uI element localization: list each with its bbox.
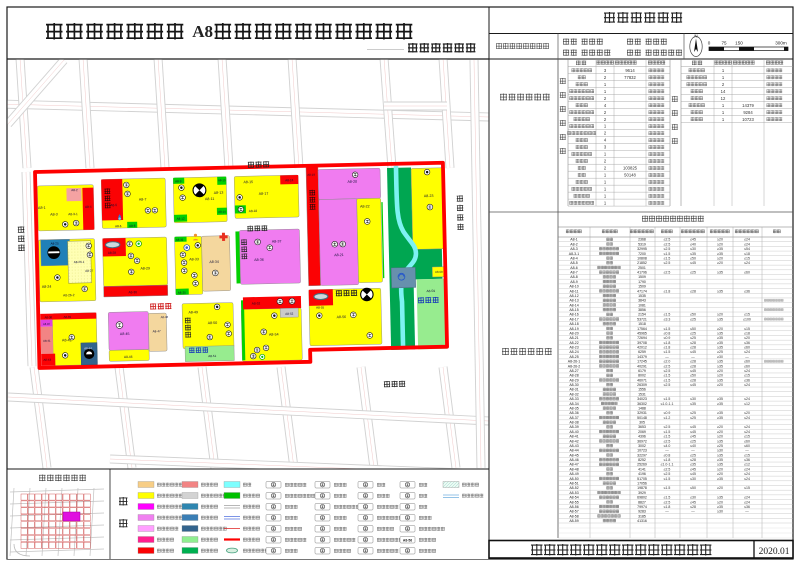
svg-text:A8-13: A8-13 xyxy=(214,191,224,195)
svg-text:A8-26-1: A8-26-1 xyxy=(568,360,581,364)
svg-text:103825: 103825 xyxy=(623,166,638,171)
svg-text:150: 150 xyxy=(735,41,743,46)
svg-text:≤1.8: ≤1.8 xyxy=(664,289,671,293)
svg-text:≥20: ≥20 xyxy=(717,313,723,317)
svg-text:A8-56: A8-56 xyxy=(569,505,578,509)
svg-text:A8-45: A8-45 xyxy=(120,332,130,336)
svg-text:≤1.5: ≤1.5 xyxy=(664,496,671,500)
svg-text:≤45: ≤45 xyxy=(690,467,696,471)
svg-text:39708: 39708 xyxy=(637,341,647,345)
svg-text:≤24: ≤24 xyxy=(744,467,750,471)
svg-text:≤45: ≤45 xyxy=(690,425,696,429)
svg-text:A8-50: A8-50 xyxy=(208,321,218,325)
svg-text:A8-47: A8-47 xyxy=(153,329,161,333)
svg-text:≥35: ≥35 xyxy=(717,247,723,251)
svg-text:4196: 4196 xyxy=(638,472,646,476)
svg-text:A8-7: A8-7 xyxy=(570,271,577,275)
svg-text:≤24: ≤24 xyxy=(744,397,750,401)
svg-text:≤36: ≤36 xyxy=(744,289,750,293)
svg-text:17056: 17056 xyxy=(637,482,647,486)
svg-text:A8-21: A8-21 xyxy=(334,253,344,257)
svg-text:1531: 1531 xyxy=(638,392,646,396)
svg-text:≤1.0-1.1: ≤1.0-1.1 xyxy=(661,402,674,406)
svg-text:A8-52: A8-52 xyxy=(569,486,578,490)
svg-text:≤15: ≤15 xyxy=(744,374,750,378)
svg-text:≤25: ≤25 xyxy=(690,317,696,321)
svg-text:A8-12: A8-12 xyxy=(177,217,185,221)
svg-text:A8-8: A8-8 xyxy=(129,224,136,228)
svg-text:A8-36: A8-36 xyxy=(254,258,264,262)
svg-text:≥35: ≥35 xyxy=(717,477,723,481)
svg-text:≤28: ≤28 xyxy=(690,346,696,350)
svg-text:≤30: ≤30 xyxy=(690,496,696,500)
svg-text:A8-48: A8-48 xyxy=(161,315,169,319)
svg-text:A8-35: A8-35 xyxy=(569,406,578,410)
svg-text:—: — xyxy=(691,449,695,453)
svg-text:9284: 9284 xyxy=(743,110,753,115)
svg-text:A8-3-1: A8-3-1 xyxy=(569,252,580,256)
svg-text:≤25: ≤25 xyxy=(690,439,696,443)
svg-text:≤1.5: ≤1.5 xyxy=(664,327,671,331)
svg-text:A8-9: A8-9 xyxy=(175,179,182,183)
svg-text:≥35: ≥35 xyxy=(717,416,723,420)
svg-text:A8-58: A8-58 xyxy=(435,270,443,274)
svg-text:14379: 14379 xyxy=(742,103,754,108)
svg-text:≤2.5: ≤2.5 xyxy=(664,472,671,476)
svg-text:6259: 6259 xyxy=(638,350,646,354)
svg-text:1509: 1509 xyxy=(638,285,646,289)
svg-text:A8-11: A8-11 xyxy=(205,197,214,201)
svg-text:≤3.3: ≤3.3 xyxy=(664,317,671,321)
svg-text:≥35: ≥35 xyxy=(717,411,723,415)
svg-text:≤0.9: ≤0.9 xyxy=(664,336,671,340)
svg-text:≤25: ≤25 xyxy=(690,271,696,275)
svg-text:≤28: ≤28 xyxy=(690,458,696,462)
svg-text:≤50: ≤50 xyxy=(690,256,696,260)
svg-text:A8-29: A8-29 xyxy=(140,266,150,270)
svg-text:≤25: ≤25 xyxy=(690,453,696,457)
svg-text:8252: 8252 xyxy=(638,458,646,462)
svg-text:A8-33: A8-33 xyxy=(569,397,578,401)
svg-text:A8-24: A8-24 xyxy=(569,350,578,354)
svg-text:≤45: ≤45 xyxy=(690,350,696,354)
svg-text:75: 75 xyxy=(721,41,727,46)
svg-text:≤1.5: ≤1.5 xyxy=(664,486,671,490)
svg-text:≤28: ≤28 xyxy=(690,378,696,382)
svg-text:A8-54: A8-54 xyxy=(269,333,279,337)
svg-text:≥35: ≥35 xyxy=(717,402,723,406)
svg-text:A8-6: A8-6 xyxy=(115,224,122,228)
svg-text:≤28: ≤28 xyxy=(690,289,696,293)
svg-text:≤20: ≤20 xyxy=(744,336,750,340)
svg-text:A8-47: A8-47 xyxy=(569,463,578,467)
svg-text:≤2.5: ≤2.5 xyxy=(664,364,671,368)
svg-text:≤1.8: ≤1.8 xyxy=(664,458,671,462)
svg-text:≤100: ≤100 xyxy=(743,317,751,321)
svg-text:41796: 41796 xyxy=(637,271,647,275)
svg-text:32297: 32297 xyxy=(637,453,647,457)
svg-text:≤36: ≤36 xyxy=(744,505,750,509)
svg-text:≥35: ≥35 xyxy=(717,463,723,467)
svg-text:≤24: ≤24 xyxy=(744,430,750,434)
svg-text:19878: 19878 xyxy=(637,486,647,490)
svg-text:—: — xyxy=(665,355,669,359)
svg-text:—: — xyxy=(745,355,749,359)
svg-text:3843: 3843 xyxy=(638,299,646,303)
svg-text:A8-32: A8-32 xyxy=(569,392,578,396)
svg-text:≤20: ≤20 xyxy=(744,411,750,415)
svg-text:—: — xyxy=(691,510,695,514)
svg-text:≤15: ≤15 xyxy=(744,327,750,331)
svg-text:50148: 50148 xyxy=(624,173,636,178)
svg-text:A8-1: A8-1 xyxy=(38,206,46,210)
svg-text:A8-28: A8-28 xyxy=(108,251,116,255)
svg-text:≤24: ≤24 xyxy=(744,425,750,429)
svg-text:0: 0 xyxy=(708,41,711,46)
svg-text:≥35: ≥35 xyxy=(717,439,723,443)
svg-text:A8-56: A8-56 xyxy=(337,315,347,319)
svg-text:4141: 4141 xyxy=(638,467,646,471)
svg-text:9614: 9614 xyxy=(625,68,635,73)
svg-text:A8-39: A8-39 xyxy=(569,425,578,429)
svg-text:5319: 5319 xyxy=(638,242,646,246)
svg-text:A8-16: A8-16 xyxy=(285,178,293,182)
svg-text:≤50: ≤50 xyxy=(690,313,696,317)
svg-text:—: — xyxy=(745,449,749,453)
svg-text:A8-51: A8-51 xyxy=(208,354,216,358)
svg-text:≥35: ≥35 xyxy=(717,378,723,382)
svg-text:≤25: ≤25 xyxy=(690,416,696,420)
svg-text:6179: 6179 xyxy=(638,369,646,373)
svg-text:36302: 36302 xyxy=(637,402,647,406)
svg-text:≤15: ≤15 xyxy=(744,256,750,260)
svg-text:A8-12: A8-12 xyxy=(569,294,578,298)
svg-text:300m: 300m xyxy=(775,41,787,46)
svg-text:≤1.5: ≤1.5 xyxy=(664,430,671,434)
svg-text:≤1.5: ≤1.5 xyxy=(664,477,671,481)
svg-text:A8-15: A8-15 xyxy=(569,308,578,312)
svg-text:A8-3: A8-3 xyxy=(570,247,577,251)
svg-text:14379: 14379 xyxy=(637,355,647,359)
svg-text:A8-48: A8-48 xyxy=(569,467,578,471)
svg-text:≥20: ≥20 xyxy=(717,374,723,378)
svg-text:≤1.5: ≤1.5 xyxy=(664,350,671,354)
svg-text:≤54: ≤54 xyxy=(744,247,750,251)
svg-text:A8-16: A8-16 xyxy=(569,313,578,317)
svg-text:≥35: ≥35 xyxy=(717,336,723,340)
svg-text:A8-2: A8-2 xyxy=(570,242,577,246)
svg-text:36972: 36972 xyxy=(637,439,647,443)
svg-text:A8-34: A8-34 xyxy=(209,260,219,264)
svg-text:≤1.5: ≤1.5 xyxy=(664,374,671,378)
svg-text:≤25: ≤25 xyxy=(690,411,696,415)
svg-text:3929: 3929 xyxy=(638,491,646,495)
svg-text:≤35: ≤35 xyxy=(690,402,696,406)
svg-text:≤1.5: ≤1.5 xyxy=(664,435,671,439)
svg-text:≥35: ≥35 xyxy=(717,346,723,350)
svg-text:21852: 21852 xyxy=(637,261,647,265)
svg-text:A8-49: A8-49 xyxy=(188,310,198,314)
svg-text:≤24: ≤24 xyxy=(744,496,750,500)
svg-text:A8-8: A8-8 xyxy=(570,275,577,279)
svg-text:4396: 4396 xyxy=(638,435,646,439)
svg-text:A8-55: A8-55 xyxy=(569,500,578,504)
svg-text:≤60: ≤60 xyxy=(744,364,750,368)
svg-text:A8-38: A8-38 xyxy=(45,315,53,319)
svg-text:7200: 7200 xyxy=(638,252,646,256)
svg-text:≤24: ≤24 xyxy=(744,416,750,420)
svg-text:A8-59: A8-59 xyxy=(569,519,578,523)
svg-text:A8-31: A8-31 xyxy=(569,388,578,392)
svg-text:≤2.5: ≤2.5 xyxy=(664,425,671,429)
svg-text:—: — xyxy=(745,510,749,514)
svg-text:≤1.8: ≤1.8 xyxy=(664,346,671,350)
svg-text:14: 14 xyxy=(721,89,726,94)
svg-text:≤15: ≤15 xyxy=(744,486,750,490)
svg-text:A8-40: A8-40 xyxy=(43,322,51,326)
svg-text:≤60: ≤60 xyxy=(744,360,750,364)
svg-text:≥35: ≥35 xyxy=(717,505,723,509)
svg-text:—: — xyxy=(665,510,669,514)
svg-text:≤2.5: ≤2.5 xyxy=(664,500,671,504)
svg-text:A8-53: A8-53 xyxy=(285,312,293,316)
svg-text:≤4.0: ≤4.0 xyxy=(664,444,671,448)
svg-text:≤15: ≤15 xyxy=(744,313,750,317)
svg-text:32995: 32995 xyxy=(637,247,647,251)
svg-text:A8-56: A8-56 xyxy=(403,539,412,543)
svg-text:A8-27: A8-27 xyxy=(85,269,93,273)
svg-text:A8-19: A8-19 xyxy=(569,327,578,331)
svg-text:41316: 41316 xyxy=(637,519,647,523)
svg-text:≤0.9: ≤0.9 xyxy=(664,411,671,415)
svg-text:1790: 1790 xyxy=(638,280,646,284)
svg-text:≤28: ≤28 xyxy=(690,341,696,345)
svg-text:A8-25: A8-25 xyxy=(569,355,578,359)
svg-text:A8-28: A8-28 xyxy=(569,374,578,378)
svg-text:2020.01: 2020.01 xyxy=(759,547,790,557)
svg-text:≥35: ≥35 xyxy=(717,317,723,321)
svg-text:≤45: ≤45 xyxy=(690,500,696,504)
svg-text:A8-36: A8-36 xyxy=(569,411,578,415)
svg-text:3856: 3856 xyxy=(638,308,646,312)
svg-text:≤25: ≤25 xyxy=(690,331,696,335)
svg-text:≤2.5: ≤2.5 xyxy=(664,238,671,242)
svg-text:≤45: ≤45 xyxy=(690,383,696,387)
svg-text:25269: 25269 xyxy=(637,463,647,467)
svg-text:A8-41: A8-41 xyxy=(43,339,51,343)
svg-text:A8-23: A8-23 xyxy=(569,346,578,350)
svg-text:72694: 72694 xyxy=(637,336,647,340)
svg-text:10808: 10808 xyxy=(637,256,647,260)
svg-text:A8-21: A8-21 xyxy=(569,336,578,340)
svg-text:A8-26-2: A8-26-2 xyxy=(568,364,581,368)
svg-text:≥20: ≥20 xyxy=(717,242,723,246)
svg-text:≤36: ≤36 xyxy=(744,458,750,462)
svg-text:A8-46: A8-46 xyxy=(124,355,133,359)
svg-text:≤24: ≤24 xyxy=(744,477,750,481)
svg-text:≤60: ≤60 xyxy=(744,271,750,275)
svg-text:≤2.5: ≤2.5 xyxy=(664,439,671,443)
svg-text:≤2.5: ≤2.5 xyxy=(664,242,671,246)
svg-text:A8-10: A8-10 xyxy=(569,285,578,289)
svg-text:A8-13: A8-13 xyxy=(569,299,578,303)
svg-text:A8-44: A8-44 xyxy=(569,449,578,453)
svg-text:≤1.5: ≤1.5 xyxy=(664,313,671,317)
svg-text:A8: A8 xyxy=(192,22,213,41)
svg-text:≥30: ≥30 xyxy=(717,355,723,359)
svg-text:≤45: ≤45 xyxy=(690,261,696,265)
svg-text:A8-57: A8-57 xyxy=(569,510,578,514)
svg-text:—: — xyxy=(691,355,695,359)
svg-text:≥35: ≥35 xyxy=(717,331,723,335)
svg-text:A8-53: A8-53 xyxy=(569,491,578,495)
svg-text:≤36: ≤36 xyxy=(744,341,750,345)
svg-text:≤24: ≤24 xyxy=(744,238,750,242)
svg-text:≤24: ≤24 xyxy=(744,242,750,246)
svg-text:9283: 9283 xyxy=(638,510,646,514)
svg-text:≥20: ≥20 xyxy=(717,261,723,265)
svg-text:≤0.8: ≤0.8 xyxy=(664,453,671,457)
svg-text:1518: 1518 xyxy=(638,322,646,326)
svg-text:≥20: ≥20 xyxy=(717,238,723,242)
svg-text:A8-23: A8-23 xyxy=(424,194,434,198)
svg-text:≤60: ≤60 xyxy=(744,346,750,350)
svg-text:A8-46: A8-46 xyxy=(569,458,578,462)
svg-text:≤1.8: ≤1.8 xyxy=(664,505,671,509)
svg-text:53721: 53721 xyxy=(637,317,647,321)
svg-text:A8-2: A8-2 xyxy=(71,188,78,192)
svg-text:A8-17: A8-17 xyxy=(569,317,578,321)
svg-text:≤50: ≤50 xyxy=(690,327,696,331)
svg-text:≤15: ≤15 xyxy=(744,435,750,439)
svg-text:≤1.0-1.1: ≤1.0-1.1 xyxy=(661,463,674,467)
svg-text:46071: 46071 xyxy=(637,378,647,382)
svg-text:≥30: ≥30 xyxy=(717,449,723,453)
svg-text:A8-54: A8-54 xyxy=(569,496,578,500)
svg-text:≤60: ≤60 xyxy=(744,439,750,443)
svg-text:≤45: ≤45 xyxy=(690,238,696,242)
svg-text:A8-35: A8-35 xyxy=(178,291,186,295)
svg-text:≤30: ≤30 xyxy=(690,477,696,481)
svg-text:A8-20: A8-20 xyxy=(347,180,357,184)
svg-text:2154: 2154 xyxy=(638,313,646,317)
svg-text:A8-26-1: A8-26-1 xyxy=(74,260,85,264)
svg-text:≤2.5: ≤2.5 xyxy=(664,467,671,471)
svg-text:A8-14: A8-14 xyxy=(218,210,226,214)
svg-text:N: N xyxy=(694,34,697,39)
svg-text:≥35: ≥35 xyxy=(717,458,723,462)
svg-text:≤35: ≤35 xyxy=(690,463,696,467)
svg-text:≥20: ≥20 xyxy=(717,369,723,373)
svg-text:≤24: ≤24 xyxy=(744,500,750,504)
svg-text:A8-15: A8-15 xyxy=(243,180,253,184)
svg-text:A8-59: A8-59 xyxy=(427,289,436,293)
svg-text:17245: 17245 xyxy=(637,360,647,364)
svg-text:A8-22: A8-22 xyxy=(360,204,370,208)
svg-text:45965: 45965 xyxy=(637,331,647,335)
svg-text:A8-30: A8-30 xyxy=(128,290,137,294)
svg-text:3002: 3002 xyxy=(638,444,646,448)
svg-text:A8-27: A8-27 xyxy=(569,369,578,373)
svg-text:10723: 10723 xyxy=(742,117,754,122)
svg-text:≥20: ≥20 xyxy=(717,486,723,490)
svg-text:≤30: ≤30 xyxy=(690,397,696,401)
svg-text:≤12: ≤12 xyxy=(744,463,750,467)
svg-text:A8-41: A8-41 xyxy=(569,435,578,439)
svg-text:≤24: ≤24 xyxy=(744,369,750,373)
svg-text:≤12: ≤12 xyxy=(744,402,750,406)
svg-text:A8-9: A8-9 xyxy=(570,280,577,284)
svg-text:A8-30: A8-30 xyxy=(569,383,578,387)
svg-text:≤24: ≤24 xyxy=(744,261,750,265)
svg-text:3185: 3185 xyxy=(638,514,646,518)
svg-text:≤24: ≤24 xyxy=(744,383,750,387)
svg-text:A8-45: A8-45 xyxy=(569,453,578,457)
svg-text:26309: 26309 xyxy=(637,383,647,387)
svg-text:≤45: ≤45 xyxy=(690,430,696,434)
svg-text:≤45: ≤45 xyxy=(690,369,696,373)
svg-text:10723: 10723 xyxy=(637,449,647,453)
svg-text:1535: 1535 xyxy=(638,294,646,298)
svg-text:≤35: ≤35 xyxy=(690,252,696,256)
svg-text:A8-6: A8-6 xyxy=(570,266,577,270)
svg-text:≤15: ≤15 xyxy=(744,453,750,457)
svg-text:—: — xyxy=(665,449,669,453)
svg-text:A8-50: A8-50 xyxy=(569,477,578,481)
svg-text:2069: 2069 xyxy=(638,430,646,434)
svg-text:≥20: ≥20 xyxy=(717,467,723,471)
svg-text:≥20: ≥20 xyxy=(717,472,723,476)
svg-text:≤28: ≤28 xyxy=(690,364,696,368)
svg-text:A8-20: A8-20 xyxy=(569,331,578,335)
svg-text:A8-3: A8-3 xyxy=(50,212,58,216)
svg-text:A8-55: A8-55 xyxy=(316,305,324,309)
svg-text:A8-24: A8-24 xyxy=(42,285,52,289)
svg-text:A8-14: A8-14 xyxy=(569,303,578,307)
svg-text:A8-4: A8-4 xyxy=(85,205,92,209)
svg-text:A8-18: A8-18 xyxy=(569,322,578,326)
svg-text:≥35: ≥35 xyxy=(717,397,723,401)
svg-text:A8-38: A8-38 xyxy=(569,421,578,425)
svg-text:A8-4: A8-4 xyxy=(570,256,577,260)
svg-text:3653: 3653 xyxy=(638,425,646,429)
svg-text:≤50: ≤50 xyxy=(690,486,696,490)
svg-text:≥20: ≥20 xyxy=(717,500,723,504)
svg-text:≤0.8: ≤0.8 xyxy=(664,331,671,335)
svg-text:≤30: ≤30 xyxy=(690,247,696,251)
svg-text:≤40: ≤40 xyxy=(690,242,696,246)
svg-text:A8-22: A8-22 xyxy=(569,341,578,345)
svg-text:40291: 40291 xyxy=(637,364,647,368)
svg-text:17564: 17564 xyxy=(637,327,647,331)
svg-text:≥35: ≥35 xyxy=(717,252,723,256)
svg-text:A8-3-1: A8-3-1 xyxy=(68,212,78,216)
svg-text:≥35: ≥35 xyxy=(717,496,723,500)
svg-text:1488: 1488 xyxy=(638,406,646,410)
svg-text:≥35: ≥35 xyxy=(717,360,723,364)
svg-text:A8-37: A8-37 xyxy=(569,416,578,420)
svg-text:32931: 32931 xyxy=(637,411,647,415)
svg-text:≤36: ≤36 xyxy=(744,378,750,382)
svg-text:A8-34: A8-34 xyxy=(569,402,578,406)
svg-text:50148: 50148 xyxy=(637,416,647,420)
svg-text:8002: 8002 xyxy=(638,374,646,378)
svg-text:79974: 79974 xyxy=(637,505,647,509)
svg-text:51705: 51705 xyxy=(637,477,647,481)
svg-text:12: 12 xyxy=(721,96,726,101)
svg-text:≤1.5: ≤1.5 xyxy=(664,378,671,382)
svg-text:≤28: ≤28 xyxy=(690,505,696,509)
